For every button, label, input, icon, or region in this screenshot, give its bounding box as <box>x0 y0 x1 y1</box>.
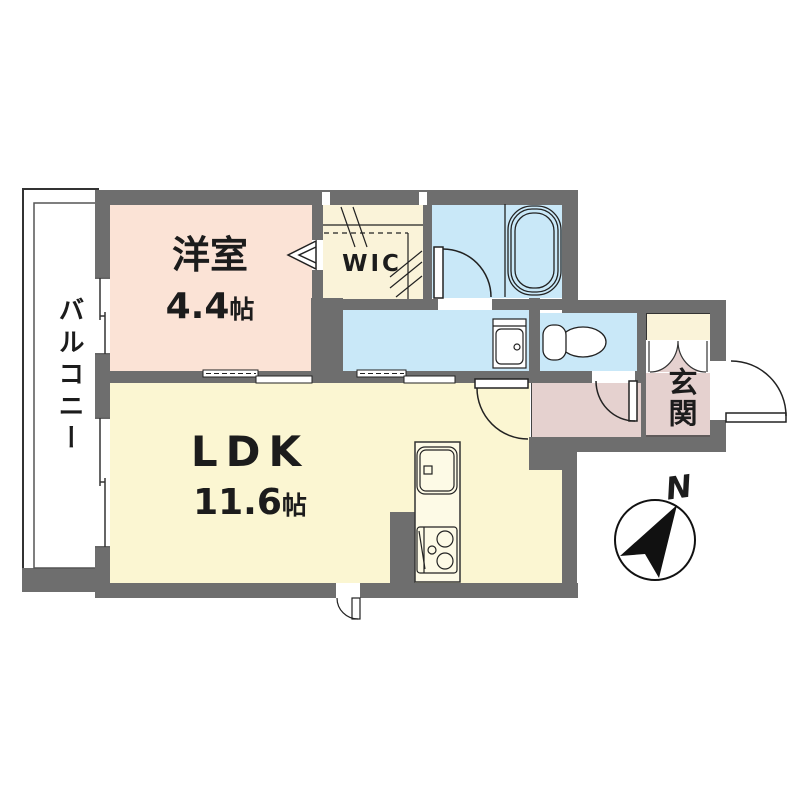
wall-top <box>95 190 578 205</box>
entry-door-opening <box>710 361 726 420</box>
ldk-floor <box>110 383 530 583</box>
wall-hall-entrance-divider <box>641 383 646 437</box>
washroom-floor <box>343 310 529 371</box>
ldk-label: LDK <box>150 430 350 474</box>
entrance-label: 玄関 <box>660 367 696 441</box>
ldk-size: 11.6帖 <box>150 484 350 522</box>
window-opening-ldk <box>95 417 110 548</box>
wall-wic-right <box>423 204 432 300</box>
compass-north-label: N <box>664 470 694 506</box>
ldk-back-door <box>337 598 360 619</box>
ldk-back-door-opening <box>336 583 360 598</box>
wall-bath-bottom <box>311 299 562 310</box>
wall-ldk-right <box>562 470 577 598</box>
entry-door <box>726 361 786 422</box>
ldk-floor-extension <box>528 470 562 583</box>
wall-toilet-left <box>529 298 540 383</box>
wall-entry-top <box>578 300 726 313</box>
wall-kitchen-block <box>390 512 415 598</box>
western-room-label: 洋室 <box>130 236 290 276</box>
toilet-door-opening <box>592 371 635 383</box>
window-opening-western <box>95 277 110 355</box>
compass-icon <box>615 500 695 580</box>
wall-joint-left <box>322 192 330 205</box>
wall-balcony-stub <box>22 568 110 592</box>
toilet-floor <box>540 313 637 371</box>
floor-plan: 洋室 4.4帖 WIC LDK 11.6帖 バルコニー 玄関 N <box>0 0 800 800</box>
balcony-label: バルコニー <box>40 296 82 496</box>
western-room-size: 4.4帖 <box>130 288 290 326</box>
wic-label: WIC <box>320 252 424 276</box>
wall-mid-band <box>110 371 646 383</box>
wall-right-upper <box>562 190 578 313</box>
wall-toilet-right <box>637 300 646 383</box>
bathroom-floor <box>432 203 562 298</box>
wall-hall-block <box>529 437 577 470</box>
hall-floor <box>531 383 642 437</box>
wall-joint-right <box>419 192 427 205</box>
shoe-cabinet <box>646 313 712 342</box>
bath-door-opening <box>438 299 492 310</box>
